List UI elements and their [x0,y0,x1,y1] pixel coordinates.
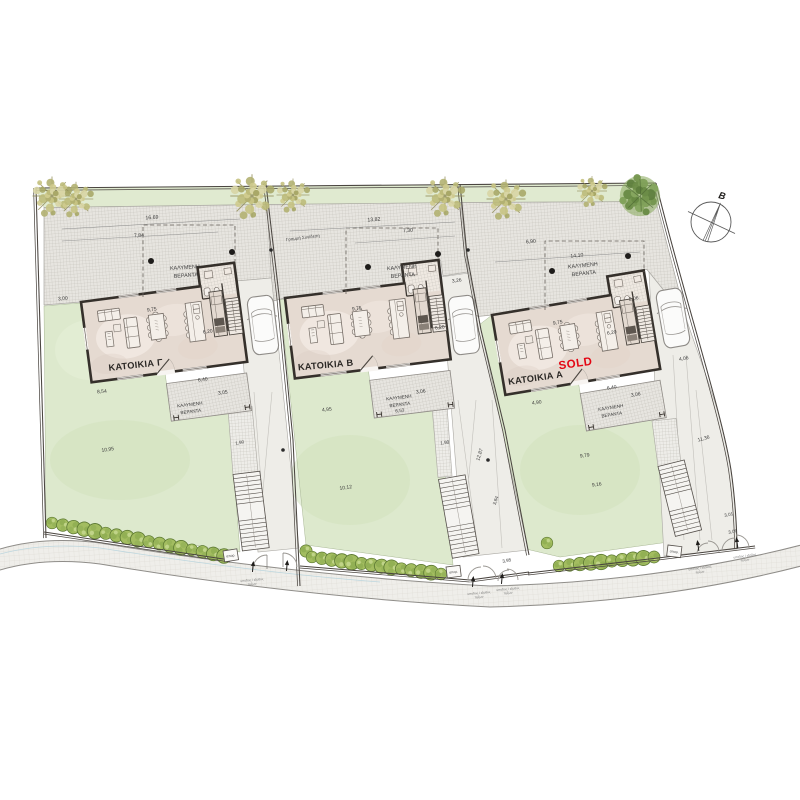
svg-text:6,40: 6,40 [198,376,209,383]
svg-text:13,82: 13,82 [367,217,380,224]
svg-text:8,54: 8,54 [97,389,107,396]
svg-text:6,20: 6,20 [203,328,214,335]
svg-text:16,69: 16,69 [145,215,158,222]
svg-text:3,05: 3,05 [218,389,229,396]
svg-text:9,75: 9,75 [147,306,158,313]
svg-text:πεζων: πεζων [503,591,513,596]
svg-text:4,95: 4,95 [322,406,333,413]
svg-text:3,06: 3,06 [416,388,427,395]
svg-text:9,75: 9,75 [352,305,363,312]
svg-text:6,20: 6,20 [435,324,446,331]
svg-text:πεζων: πεζων [247,582,257,587]
svg-text:πεζων: πεζων [474,595,484,600]
svg-text:7,30: 7,30 [403,228,414,235]
svg-text:6,90: 6,90 [526,239,537,246]
svg-text:7,84: 7,84 [134,233,145,240]
svg-text:3,00: 3,00 [58,296,68,303]
svg-text:14,10: 14,10 [570,252,584,259]
